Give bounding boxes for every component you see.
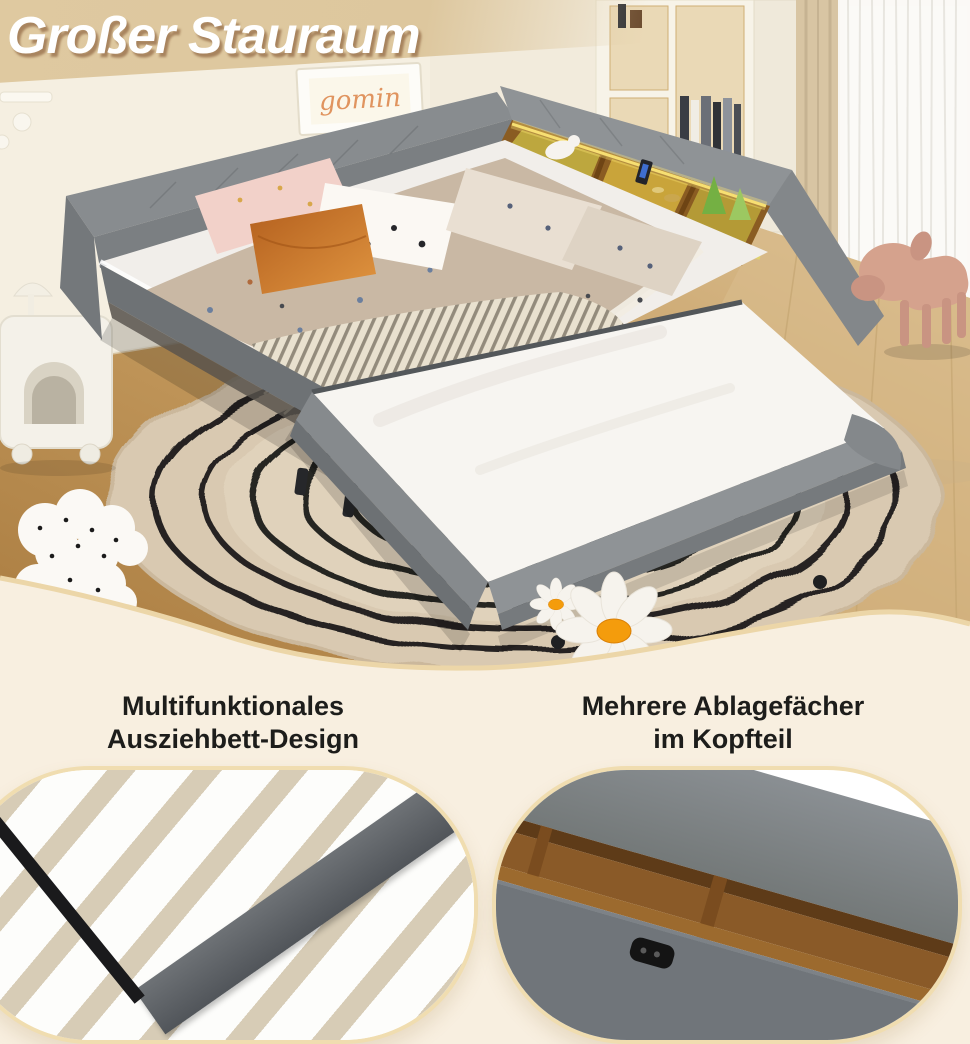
headboard-closeup — [492, 766, 962, 1044]
frame-art-text: gomin — [318, 83, 401, 117]
detail-photo-slats — [0, 766, 478, 1044]
feature-caption-storage: Mehrere Ablagefächer im Kopfteil — [518, 690, 928, 756]
hero-photo: gomin — [0, 0, 970, 700]
feature-caption-line: Mehrere Ablagefächer — [582, 691, 865, 721]
feature-caption-line: im Kopfteil — [653, 724, 793, 754]
caster-wheel — [813, 575, 827, 589]
daisy-pillow — [556, 572, 672, 688]
detail-photo-headboard-storage — [492, 766, 962, 1044]
feature-caption-line: Ausziehbett-Design — [107, 724, 359, 754]
page-title: Großer Stauraum — [7, 8, 420, 65]
feature-caption-line: Multifunktionales — [122, 691, 344, 721]
product-image: { "page": { "background": "#f8efe0" }, "… — [0, 0, 970, 971]
feature-caption-trundle: Multifunktionales Ausziehbett-Design — [28, 690, 438, 756]
